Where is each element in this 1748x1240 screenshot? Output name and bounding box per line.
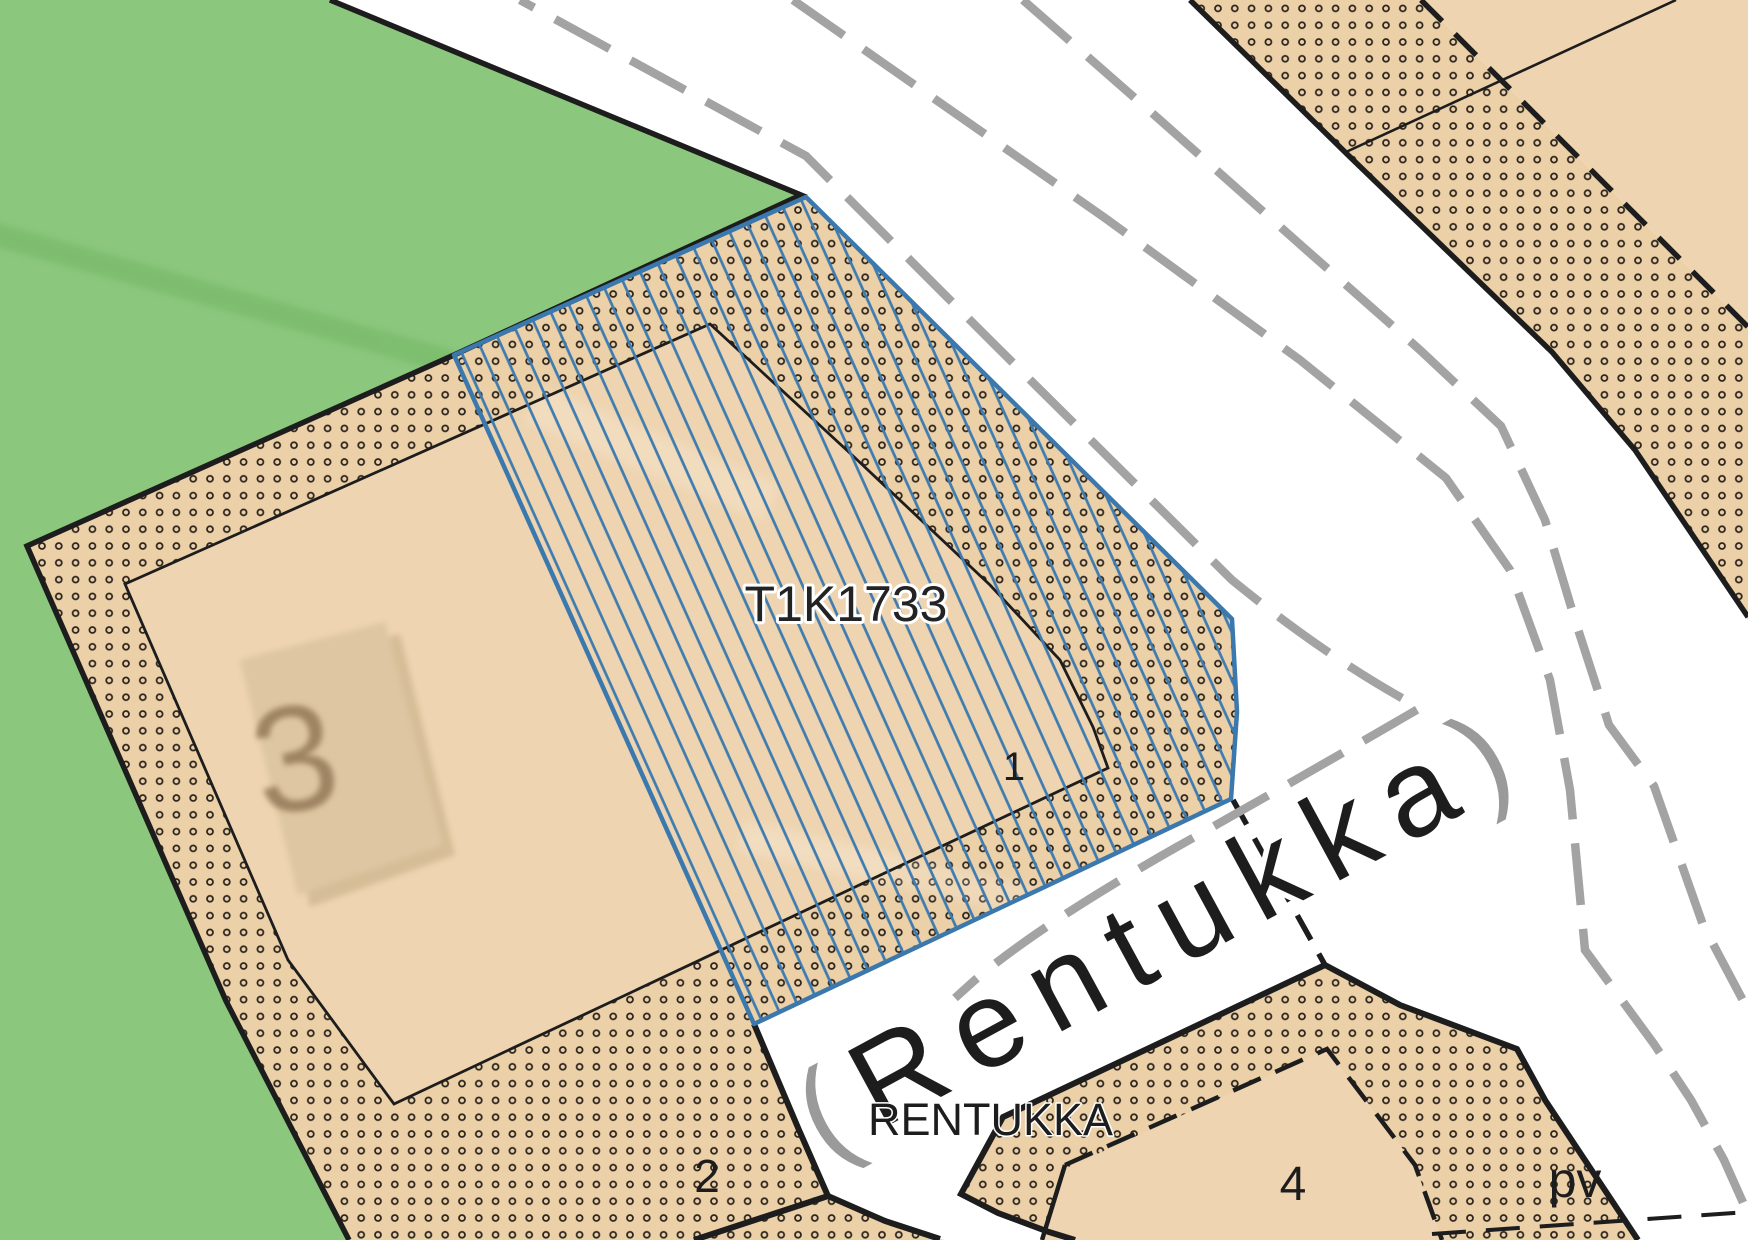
svg-text:T1K1733: T1K1733: [745, 576, 948, 632]
svg-text:pv: pv: [1549, 1152, 1602, 1208]
svg-text:4: 4: [1280, 1158, 1307, 1211]
svg-text:2: 2: [694, 1150, 720, 1202]
svg-text:RENTUKKA: RENTUKKA: [868, 1094, 1113, 1145]
svg-text:1: 1: [1003, 745, 1025, 789]
